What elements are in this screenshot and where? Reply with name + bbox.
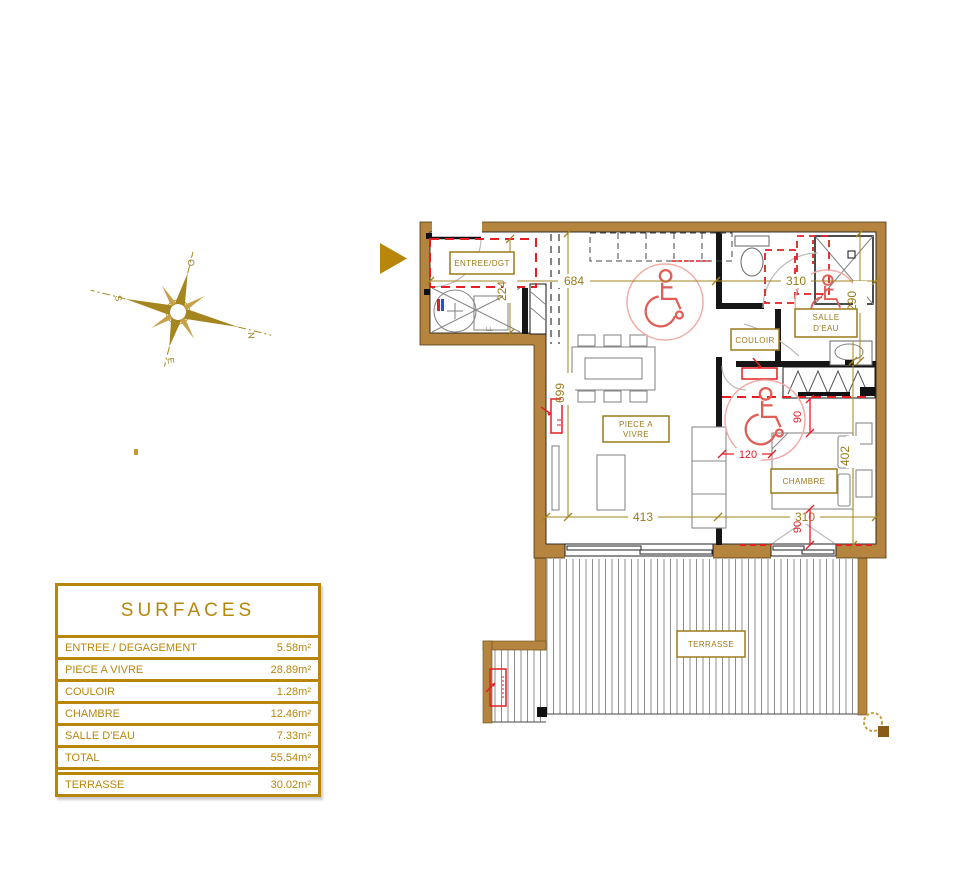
- dining-table: [572, 335, 655, 402]
- terrace-step: [537, 707, 547, 717]
- compass-east-label: E: [166, 357, 177, 364]
- row-value: 5.58m²: [277, 642, 311, 654]
- table-row: PIECE A VIVRE 28.89m²: [58, 660, 318, 682]
- sofa: [692, 427, 726, 528]
- bathroom-sink: [830, 341, 872, 365]
- wardrobe: [783, 367, 875, 398]
- table-row: CHAMBRE 12.46m²: [58, 704, 318, 726]
- bay-window: [565, 544, 713, 556]
- row-label: TERRASSE: [65, 779, 124, 791]
- coffee-table: [597, 455, 625, 510]
- dim-684: 684: [564, 274, 584, 288]
- surfaces-table: SURFACES ENTREE / DEGAGEMENT 5.58m² PIEC…: [55, 583, 321, 797]
- dim-402: 402: [838, 446, 852, 466]
- stray-mark: [134, 449, 138, 455]
- room-label-living-2: VIVRE: [623, 430, 649, 439]
- table-row: COULOIR 1.28m²: [58, 682, 318, 704]
- table-row: TOTAL 55.54m²: [58, 748, 318, 770]
- row-value: 12.46m²: [271, 708, 311, 720]
- compass-west-label: O: [186, 259, 197, 267]
- room-label-living-1: PIECE A: [619, 420, 653, 429]
- room-label-terrasse: TERRASSE: [688, 640, 734, 649]
- row-value: 55.54m²: [271, 752, 311, 764]
- row-value: 28.89m²: [271, 664, 311, 676]
- table-row: ENTREE / DEGAGEMENT 5.58m²: [58, 638, 318, 660]
- room-label-couloir: COULOIR: [735, 336, 774, 345]
- bedroom-window: [771, 544, 836, 556]
- row-value: 7.33m²: [277, 730, 311, 742]
- dim-90-upper: 90: [792, 411, 804, 423]
- row-label: ENTREE / DEGAGEMENT: [65, 642, 197, 654]
- room-label-chambre: CHAMBRE: [783, 477, 826, 486]
- row-value: 30.02m²: [271, 779, 311, 791]
- dim-90-lower: 90: [792, 521, 804, 533]
- room-label-entree: ENTREE/DGT: [454, 259, 510, 268]
- radiator: [552, 446, 559, 510]
- room-label-bath-2: D'EAU: [813, 324, 839, 333]
- row-label: TOTAL: [65, 752, 99, 764]
- table-row: SALLE D'EAU 7.33m²: [58, 726, 318, 748]
- row-label: COULOIR: [65, 686, 115, 698]
- washing-machine-label: LL: [486, 327, 493, 333]
- table-row: TERRASSE 30.02m²: [58, 775, 318, 794]
- dim-290: 290: [845, 291, 859, 311]
- wc-toilet: [735, 236, 769, 276]
- surfaces-title: SURFACES: [58, 586, 318, 638]
- row-label: PIECE A VIVRE: [65, 664, 143, 676]
- row-value: 1.28m²: [277, 686, 311, 698]
- compass-south-label: S: [113, 295, 124, 302]
- dim-413: 413: [633, 510, 653, 524]
- dim-224: 224: [495, 281, 509, 301]
- compass-north-label: N: [246, 332, 257, 340]
- nightstand: [856, 470, 872, 497]
- dim-120: 120: [739, 449, 757, 461]
- dim-310-top: 310: [786, 274, 806, 288]
- floor-plan-page: LL: [0, 0, 972, 887]
- row-label: CHAMBRE: [65, 708, 120, 720]
- dim-699: 699: [553, 383, 567, 403]
- kitchen-cabinets: [590, 233, 732, 261]
- wheelchair-symbol-living: [627, 264, 703, 340]
- entrance-arrow-icon: [380, 243, 407, 274]
- row-label: SALLE D'EAU: [65, 730, 135, 742]
- room-label-bath-1: SALLE: [813, 313, 840, 322]
- compass-rose-icon: N S E O: [77, 230, 286, 389]
- entry-door-opening: [432, 220, 482, 233]
